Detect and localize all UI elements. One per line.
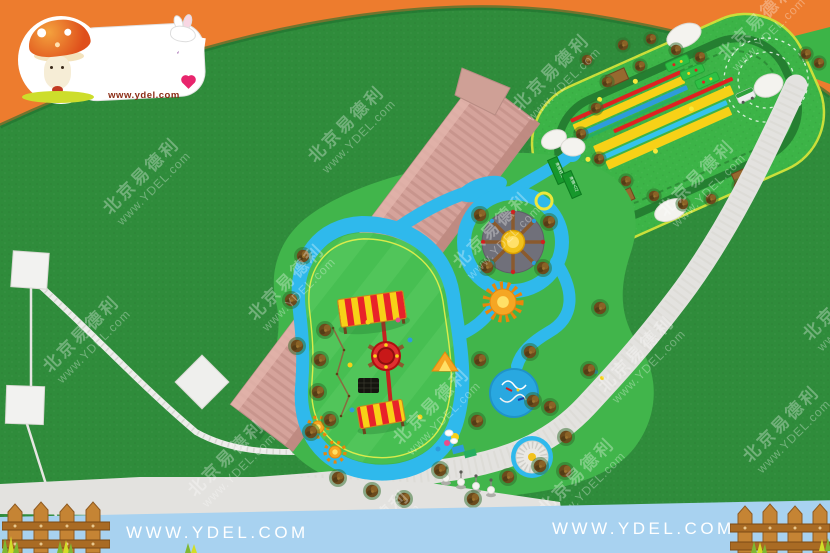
tree-icon [579, 52, 594, 67]
rabbit-icon [168, 18, 198, 40]
grass-tuft-icon [56, 540, 74, 553]
tree-icon [321, 411, 339, 429]
tree-icon [524, 392, 542, 410]
tree-icon [329, 469, 347, 487]
tree-icon [478, 258, 496, 276]
tree-icon [431, 461, 449, 479]
footer-website-right: WWW.YDEL.COM [552, 519, 735, 539]
tree-icon [675, 196, 690, 211]
tree-icon [703, 191, 718, 206]
tree-icon [311, 351, 329, 369]
tree-icon [521, 343, 539, 361]
playground-aerial-rendering: 北京易德利www.YDEL.com北京易德利www.YDEL.com北京易德利w… [0, 0, 830, 553]
tree-icon [471, 351, 489, 369]
logo-website: www.ydel.com [90, 90, 198, 101]
brand-character: 易 [92, 33, 133, 81]
tree-icon [556, 462, 574, 480]
tree-icon [798, 46, 813, 61]
grass-tuft-icon [0, 536, 20, 553]
tree-icon [692, 49, 707, 64]
tree-icon [531, 457, 549, 475]
tree-icon [541, 398, 559, 416]
tree-icon [302, 423, 320, 441]
river-rock-bridge [561, 138, 585, 156]
tree-icon [471, 206, 489, 224]
tree-icon [646, 188, 661, 203]
tree-icon [668, 42, 683, 57]
tree-icon [591, 299, 609, 317]
brand-logo: 易 德 利 www.ydel.com [12, 12, 208, 112]
tree-icon [557, 428, 575, 446]
tree-icon [288, 337, 306, 355]
tree-icon [580, 361, 598, 379]
tree-icon [811, 55, 826, 70]
tree-icon [534, 259, 552, 277]
brand-character: 德 [130, 28, 169, 73]
tree-icon [499, 468, 517, 486]
tree-icon [599, 74, 614, 89]
footer-website-left: WWW.YDEL.COM [126, 523, 309, 543]
tree-icon [468, 412, 486, 430]
tree-icon [294, 247, 312, 265]
climbing-net [358, 378, 379, 393]
tree-icon [643, 31, 658, 46]
grass-tuft-icon [750, 541, 768, 553]
tree-icon [591, 151, 606, 166]
tree-icon [464, 490, 482, 508]
tree-icon [395, 490, 413, 508]
tree-icon [282, 291, 300, 309]
wooden-fence-icon [730, 502, 830, 553]
grass-tuft-icon [818, 538, 830, 551]
zipline-platform [5, 385, 44, 424]
grass-tuft-icon [184, 543, 200, 553]
tree-icon [316, 321, 334, 339]
tree-icon [363, 482, 381, 500]
tree-icon [588, 100, 603, 115]
tree-icon [632, 58, 647, 73]
tree-icon [615, 37, 630, 52]
zipline-platform [11, 251, 49, 289]
tree-icon [309, 383, 327, 401]
tree-icon [540, 213, 558, 231]
